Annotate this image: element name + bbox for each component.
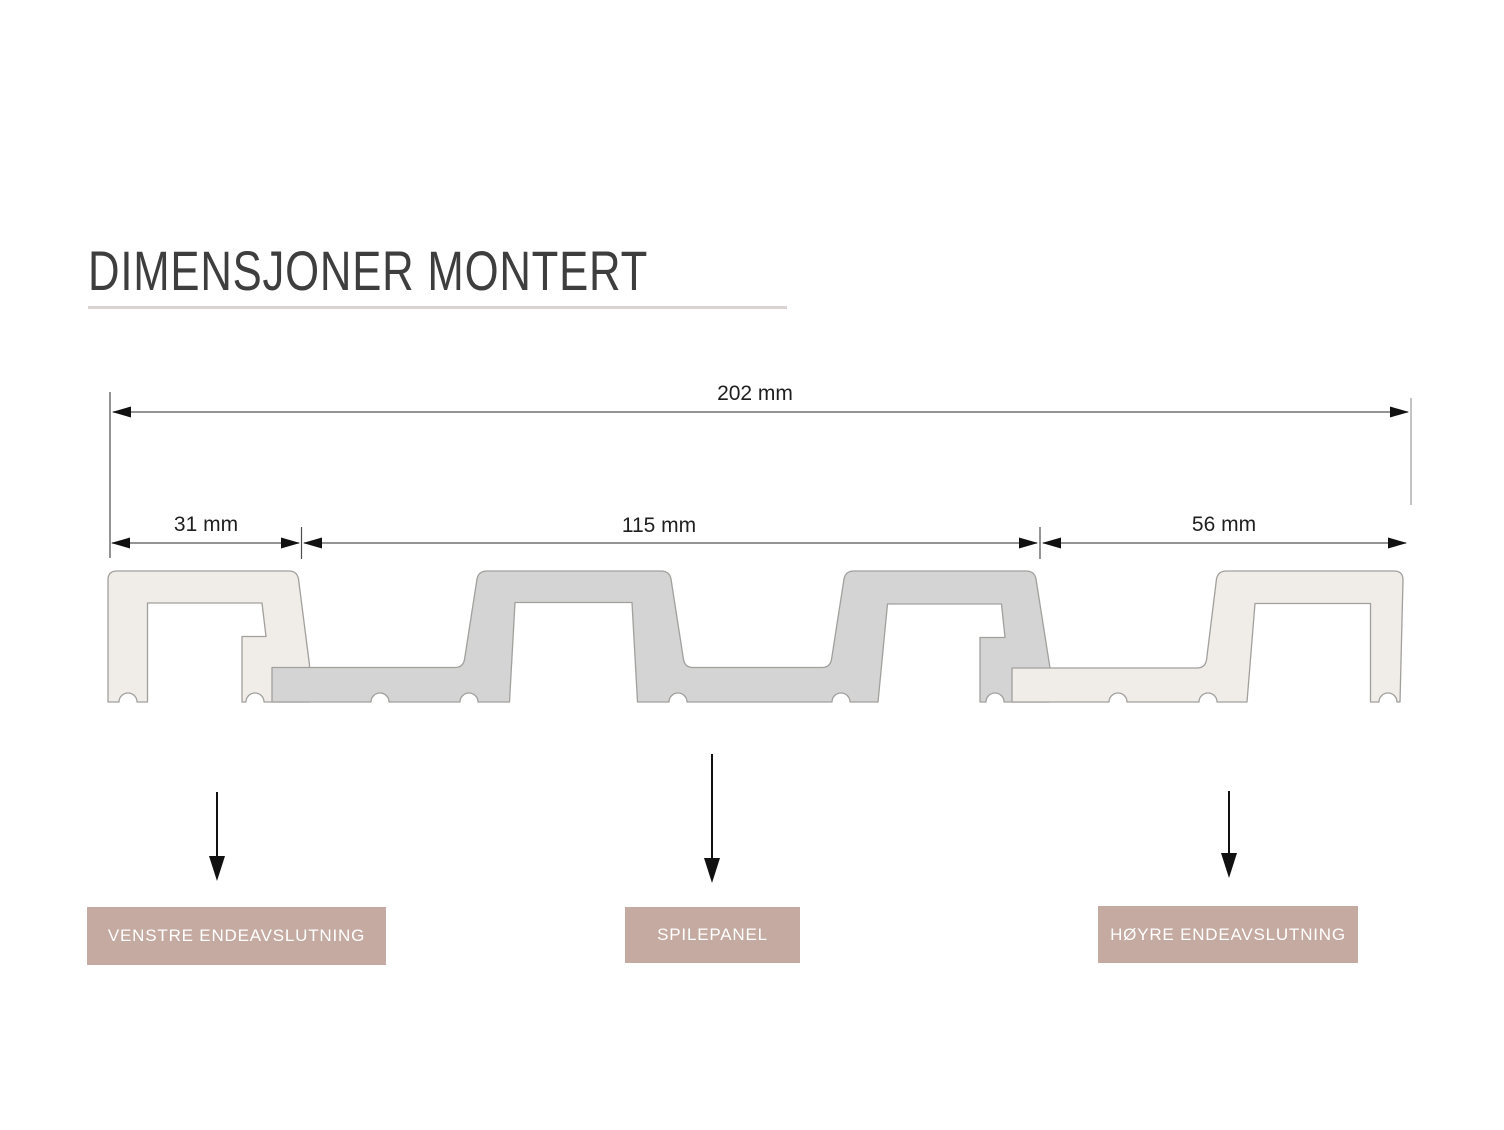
left-end-dimension: 31 mm: [111, 513, 300, 549]
right-end-profile: [1012, 571, 1403, 702]
left-end-dimension-label: 31 mm: [174, 513, 238, 536]
dimension-diagram-page: DIMENSJONER MONTERT 202 mm 31 mm: [0, 0, 1504, 1130]
arrowhead-right-icon: [1019, 538, 1038, 549]
spilepanel-profile: [272, 571, 1050, 702]
label-text: HØYRE ENDEAVSLUTNING: [1110, 925, 1346, 945]
left-pointer-arrow-icon: [209, 792, 225, 881]
arrowhead-right-icon: [1388, 538, 1407, 549]
arrowhead-right-icon: [1390, 407, 1409, 418]
arrowhead-left-icon: [112, 407, 131, 418]
right-end-dimension: 56 mm: [1042, 513, 1407, 549]
label-text: VENSTRE ENDEAVSLUTNING: [108, 926, 365, 946]
total-dimension-label: 202 mm: [717, 382, 793, 405]
arrowhead-left-icon: [303, 538, 322, 549]
label-hoyre-endeavslutning: HØYRE ENDEAVSLUTNING: [1098, 906, 1358, 963]
middle-pointer-arrow-icon: [704, 754, 720, 883]
right-end-dimension-label: 56 mm: [1192, 513, 1256, 536]
profile-cross-section: [108, 571, 1403, 702]
right-pointer-arrow-icon: [1221, 791, 1237, 878]
label-text: SPILEPANEL: [657, 925, 768, 945]
arrowhead-left-icon: [1042, 538, 1061, 549]
pointer-arrows: [209, 754, 1237, 883]
total-dimension: 202 mm: [112, 382, 1409, 418]
panel-dimension-label: 115 mm: [622, 514, 696, 537]
arrowhead-right-icon: [281, 538, 300, 549]
panel-dimension: 115 mm: [303, 514, 1038, 549]
arrowhead-left-icon: [111, 538, 130, 549]
label-spilepanel: SPILEPANEL: [625, 907, 800, 963]
label-venstre-endeavslutning: VENSTRE ENDEAVSLUTNING: [87, 907, 386, 965]
